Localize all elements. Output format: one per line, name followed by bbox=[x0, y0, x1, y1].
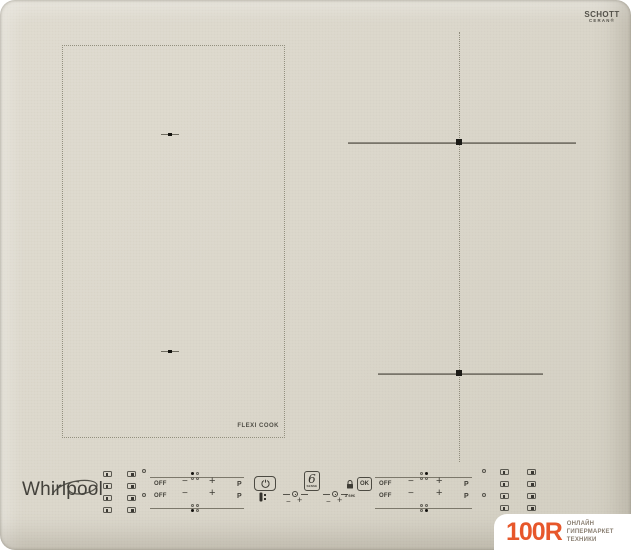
power-minus-button: − bbox=[182, 477, 188, 487]
top-right-zone-center-dot bbox=[456, 139, 462, 145]
sixth-sense-caption: SENSE bbox=[307, 485, 318, 488]
power-minus-button: − bbox=[182, 489, 188, 499]
right-zones-divider-dotted-line bbox=[459, 32, 460, 462]
power-on-off-button bbox=[254, 476, 276, 491]
shop-tagline-line: ОНЛАЙН bbox=[567, 521, 614, 528]
zone-position-dots bbox=[420, 504, 428, 512]
zone-select-icon bbox=[127, 471, 136, 477]
whirlpool-swirl-icon bbox=[50, 476, 102, 502]
sixth-sense-digit: 6 bbox=[308, 472, 316, 486]
power-plus-button: + bbox=[209, 488, 215, 499]
zone-select-icon bbox=[127, 507, 136, 513]
off-button: OFF bbox=[379, 493, 392, 499]
schott-name: SCHOTT bbox=[578, 10, 626, 19]
zone-indicator-light bbox=[142, 493, 146, 497]
power-minus-button: − bbox=[408, 477, 414, 487]
key-lock-icon bbox=[259, 492, 267, 502]
flexi-cook-zone: FLEXI COOK bbox=[62, 45, 285, 438]
zone-select-icon bbox=[527, 469, 536, 475]
zone-position-dots bbox=[191, 504, 199, 512]
zone-position-dots bbox=[420, 472, 428, 480]
booster-button: P bbox=[464, 493, 469, 500]
booster-button: P bbox=[237, 493, 242, 500]
shop-watermark: 100R ОНЛАЙН ГИПЕРМАРКЕТ ТЕХНИКИ bbox=[494, 514, 631, 550]
zone-indicator-light bbox=[142, 469, 146, 473]
power-icon bbox=[261, 479, 270, 488]
zone-indicator-light bbox=[482, 469, 486, 473]
flexi-cook-label: FLEXI COOK bbox=[237, 423, 279, 429]
shop-tagline-line: ГИПЕРМАРКЕТ bbox=[567, 529, 614, 536]
ceran-name: CERAN® bbox=[587, 19, 617, 23]
zone-indicator-light bbox=[482, 493, 486, 497]
control-lock-icon bbox=[346, 480, 354, 489]
shop-logo-100r: 100R bbox=[506, 520, 562, 545]
lock-hold-hint: 3 sec bbox=[344, 494, 356, 498]
marker-dot bbox=[168, 133, 172, 136]
booster-button: P bbox=[464, 481, 469, 488]
zone-select-icon bbox=[103, 471, 112, 477]
zone-select-icon bbox=[500, 493, 509, 499]
zone-select-icon bbox=[103, 483, 112, 489]
off-button: OFF bbox=[379, 481, 392, 487]
zone-select-icon bbox=[527, 505, 536, 511]
off-button: OFF bbox=[154, 481, 167, 487]
timer-minus-button: − bbox=[326, 498, 331, 506]
zone-select-icon bbox=[500, 469, 509, 475]
sixth-sense-button: 6 SENSE bbox=[304, 471, 320, 491]
cooktop-surface: SCHOTT CERAN® FLEXI COOK Whirlpool OFF −… bbox=[0, 0, 631, 550]
shop-tagline-line: ТЕХНИКИ bbox=[567, 537, 614, 544]
zone-select-icon bbox=[127, 483, 136, 489]
power-plus-button: + bbox=[209, 476, 215, 487]
shop-tagline: ОНЛАЙН ГИПЕРМАРКЕТ ТЕХНИКИ bbox=[567, 521, 614, 544]
zone-select-icon bbox=[103, 507, 112, 513]
timer-digit-dash bbox=[283, 494, 290, 495]
power-minus-button: − bbox=[408, 489, 414, 499]
top-right-zone-line bbox=[348, 142, 576, 144]
burner-center-marker bbox=[161, 132, 179, 137]
zone-select-icon bbox=[103, 495, 112, 501]
marker-dot bbox=[168, 350, 172, 353]
timer-digit-dash bbox=[301, 494, 308, 495]
bottom-right-zone-center-dot bbox=[456, 370, 462, 376]
burner-center-marker bbox=[161, 349, 179, 354]
zone-select-icon bbox=[127, 495, 136, 501]
power-plus-button: + bbox=[436, 488, 442, 499]
zone-position-dots bbox=[191, 472, 199, 480]
zone-select-icon bbox=[527, 493, 536, 499]
ok-button: OK bbox=[357, 477, 372, 491]
timer-plus-button: + bbox=[297, 496, 302, 505]
timer-digit-dash bbox=[323, 494, 330, 495]
timer-minus-button: − bbox=[286, 498, 291, 506]
schott-ceran-logo: SCHOTT CERAN® bbox=[578, 10, 626, 26]
off-button: OFF bbox=[154, 493, 167, 499]
zone-select-icon bbox=[500, 481, 509, 487]
zone-select-icon bbox=[500, 505, 509, 511]
booster-button: P bbox=[237, 481, 242, 488]
zone-select-icon bbox=[527, 481, 536, 487]
power-plus-button: + bbox=[436, 476, 442, 487]
